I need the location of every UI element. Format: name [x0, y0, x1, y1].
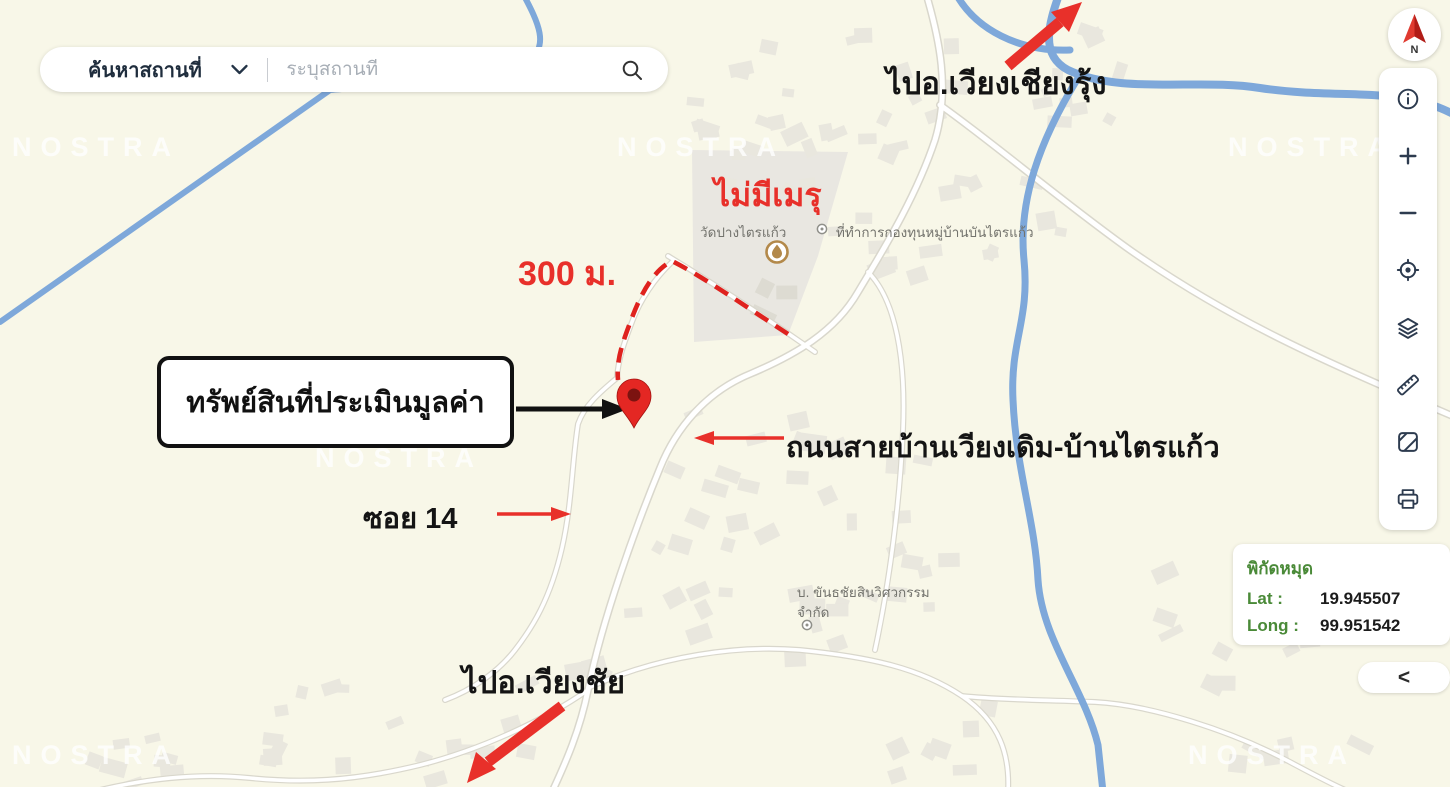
lat-value: 19.945507: [1320, 589, 1400, 609]
map-app: NOSTRA NOSTRA NOSTRA NOSTRA NOSTRA NOSTR…: [0, 0, 1450, 787]
long-label: Long :: [1247, 616, 1320, 636]
village-fund-label: ที่ทำการกองทุนหมู่บ้านบันไตรแก้ว: [836, 221, 1034, 243]
info-button[interactable]: [1393, 84, 1423, 114]
arrow-soi-label: [497, 507, 571, 521]
arrow-to-wiang-chiang-rung: [1008, 2, 1082, 66]
lat-label: Lat :: [1247, 589, 1320, 609]
ruler-icon: [1395, 372, 1421, 398]
basemap-button[interactable]: [1393, 427, 1423, 457]
company-label-line1: บ. ขันธชัยสินวิศวกรรม: [797, 581, 930, 603]
annotation-no-crematorium: ไม่มีเมรุ: [714, 170, 822, 221]
temple-label: วัดปางไตรแก้ว: [700, 221, 786, 243]
search-input[interactable]: [272, 59, 620, 81]
long-row: Long : 99.951542: [1247, 616, 1436, 636]
layers-button[interactable]: [1393, 313, 1423, 343]
zoom-in-button[interactable]: [1393, 141, 1423, 171]
basemap-icon: [1395, 429, 1421, 455]
annotation-distance: 300 ม.: [518, 246, 616, 300]
layers-icon: [1395, 315, 1421, 341]
zoom-out-button[interactable]: [1393, 198, 1423, 228]
measure-button[interactable]: [1393, 370, 1423, 400]
compass-button[interactable]: N: [1388, 8, 1441, 61]
plus-icon: [1395, 143, 1421, 169]
locate-button[interactable]: [1393, 255, 1423, 285]
svg-text:N: N: [1411, 44, 1419, 56]
compass-north-icon: N: [1388, 8, 1441, 61]
temple-icon: [767, 242, 788, 263]
collapse-panel-button[interactable]: <: [1358, 662, 1450, 693]
search-category-label: ค้นหาสถานที่: [88, 54, 202, 86]
annotation-to-wiang-chiang-rung: ไปอ.เวียงเชียงรุ้ง: [886, 58, 1107, 108]
arrow-road-label: [694, 431, 784, 445]
search-category-dropdown[interactable]: ค้นหาสถานที่: [40, 47, 263, 92]
locate-target-icon: [1395, 257, 1421, 283]
annotation-road: ถนนสายบ้านเวียงเดิม-บ้านไตรแก้ว: [786, 424, 1220, 470]
minus-icon: [1395, 200, 1421, 226]
map-toolbar: [1379, 68, 1437, 530]
search-divider: [267, 58, 269, 82]
annotation-to-wiang-chai: ไปอ.เวียงชัย: [462, 657, 625, 707]
search-button[interactable]: [620, 58, 668, 82]
search-icon: [620, 58, 644, 82]
lat-row: Lat : 19.945507: [1247, 589, 1436, 609]
property-pin[interactable]: [617, 379, 651, 428]
arrow-property-pin: [516, 399, 628, 419]
long-value: 99.951542: [1320, 616, 1400, 636]
annotation-soi: ซอย 14: [363, 495, 457, 541]
pin-coordinates-panel: พิกัดหมุด Lat : 19.945507 Long : 99.9515…: [1233, 544, 1450, 645]
company-label-line2: จำกัด: [797, 601, 829, 623]
chevron-down-icon: [230, 63, 249, 76]
coords-title: พิกัดหมุด: [1247, 555, 1436, 582]
property-callout-box: ทรัพย์สินที่ประเมินมูลค่า: [157, 356, 514, 448]
printer-icon: [1395, 486, 1421, 512]
info-icon: [1395, 86, 1421, 112]
print-button[interactable]: [1393, 484, 1423, 514]
search-bar: ค้นหาสถานที่: [40, 47, 668, 92]
village-fund-dot-icon: [817, 224, 826, 233]
